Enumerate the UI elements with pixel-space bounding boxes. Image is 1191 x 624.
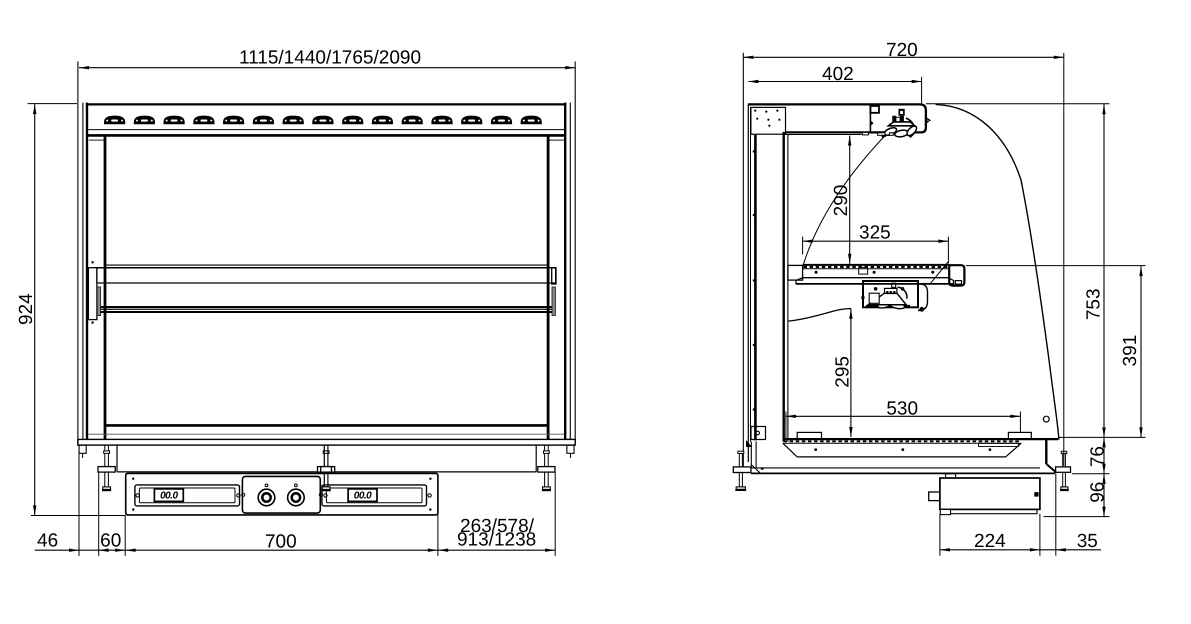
svg-text:46: 46	[37, 531, 58, 552]
svg-text:224: 224	[974, 531, 1006, 552]
svg-text:924: 924	[16, 293, 37, 325]
svg-text:96: 96	[1087, 482, 1108, 503]
svg-text:00.0: 00.0	[160, 491, 178, 502]
svg-text:753: 753	[1083, 288, 1104, 320]
svg-text:700: 700	[265, 531, 297, 552]
svg-text:391: 391	[1120, 335, 1141, 367]
svg-text:1115/1440/1765/2090: 1115/1440/1765/2090	[239, 48, 421, 69]
svg-text:295: 295	[833, 356, 854, 388]
svg-text:76: 76	[1087, 446, 1108, 467]
svg-text:290: 290	[831, 185, 852, 217]
svg-text:60: 60	[100, 531, 121, 552]
svg-text:325: 325	[859, 223, 891, 244]
svg-text:913/1238: 913/1238	[457, 529, 536, 550]
svg-text:00.0: 00.0	[354, 491, 372, 502]
svg-text:35: 35	[1077, 531, 1098, 552]
